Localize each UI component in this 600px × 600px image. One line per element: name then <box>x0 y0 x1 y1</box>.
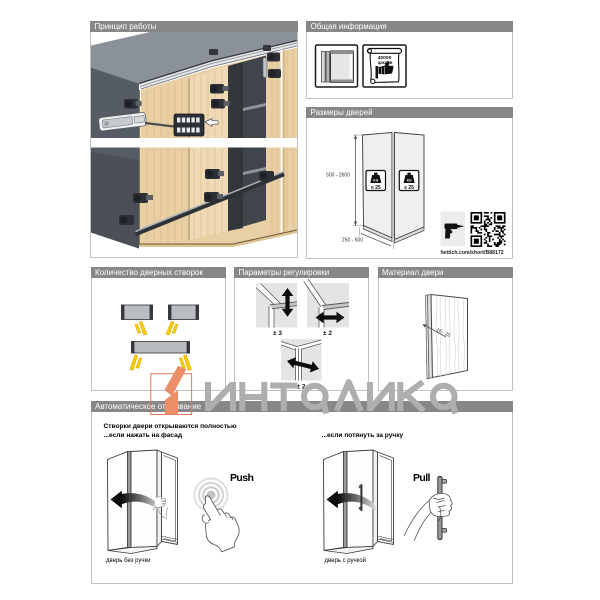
svg-text:циклов: циклов <box>378 60 393 65</box>
svg-text:± 3: ± 3 <box>273 330 282 337</box>
svg-text:± 2: ± 2 <box>323 330 332 337</box>
svg-text:KG: KG <box>373 179 378 183</box>
svg-text:≤ 25: ≤ 25 <box>404 185 414 191</box>
svg-text:KG: KG <box>407 179 412 183</box>
svg-text:hettich.com/short/B88172: hettich.com/short/B88172 <box>441 250 504 256</box>
svg-text:≤ 25: ≤ 25 <box>371 185 381 191</box>
svg-text:250 - 600: 250 - 600 <box>342 238 363 244</box>
svg-text:500 - 2600: 500 - 2600 <box>326 173 350 179</box>
